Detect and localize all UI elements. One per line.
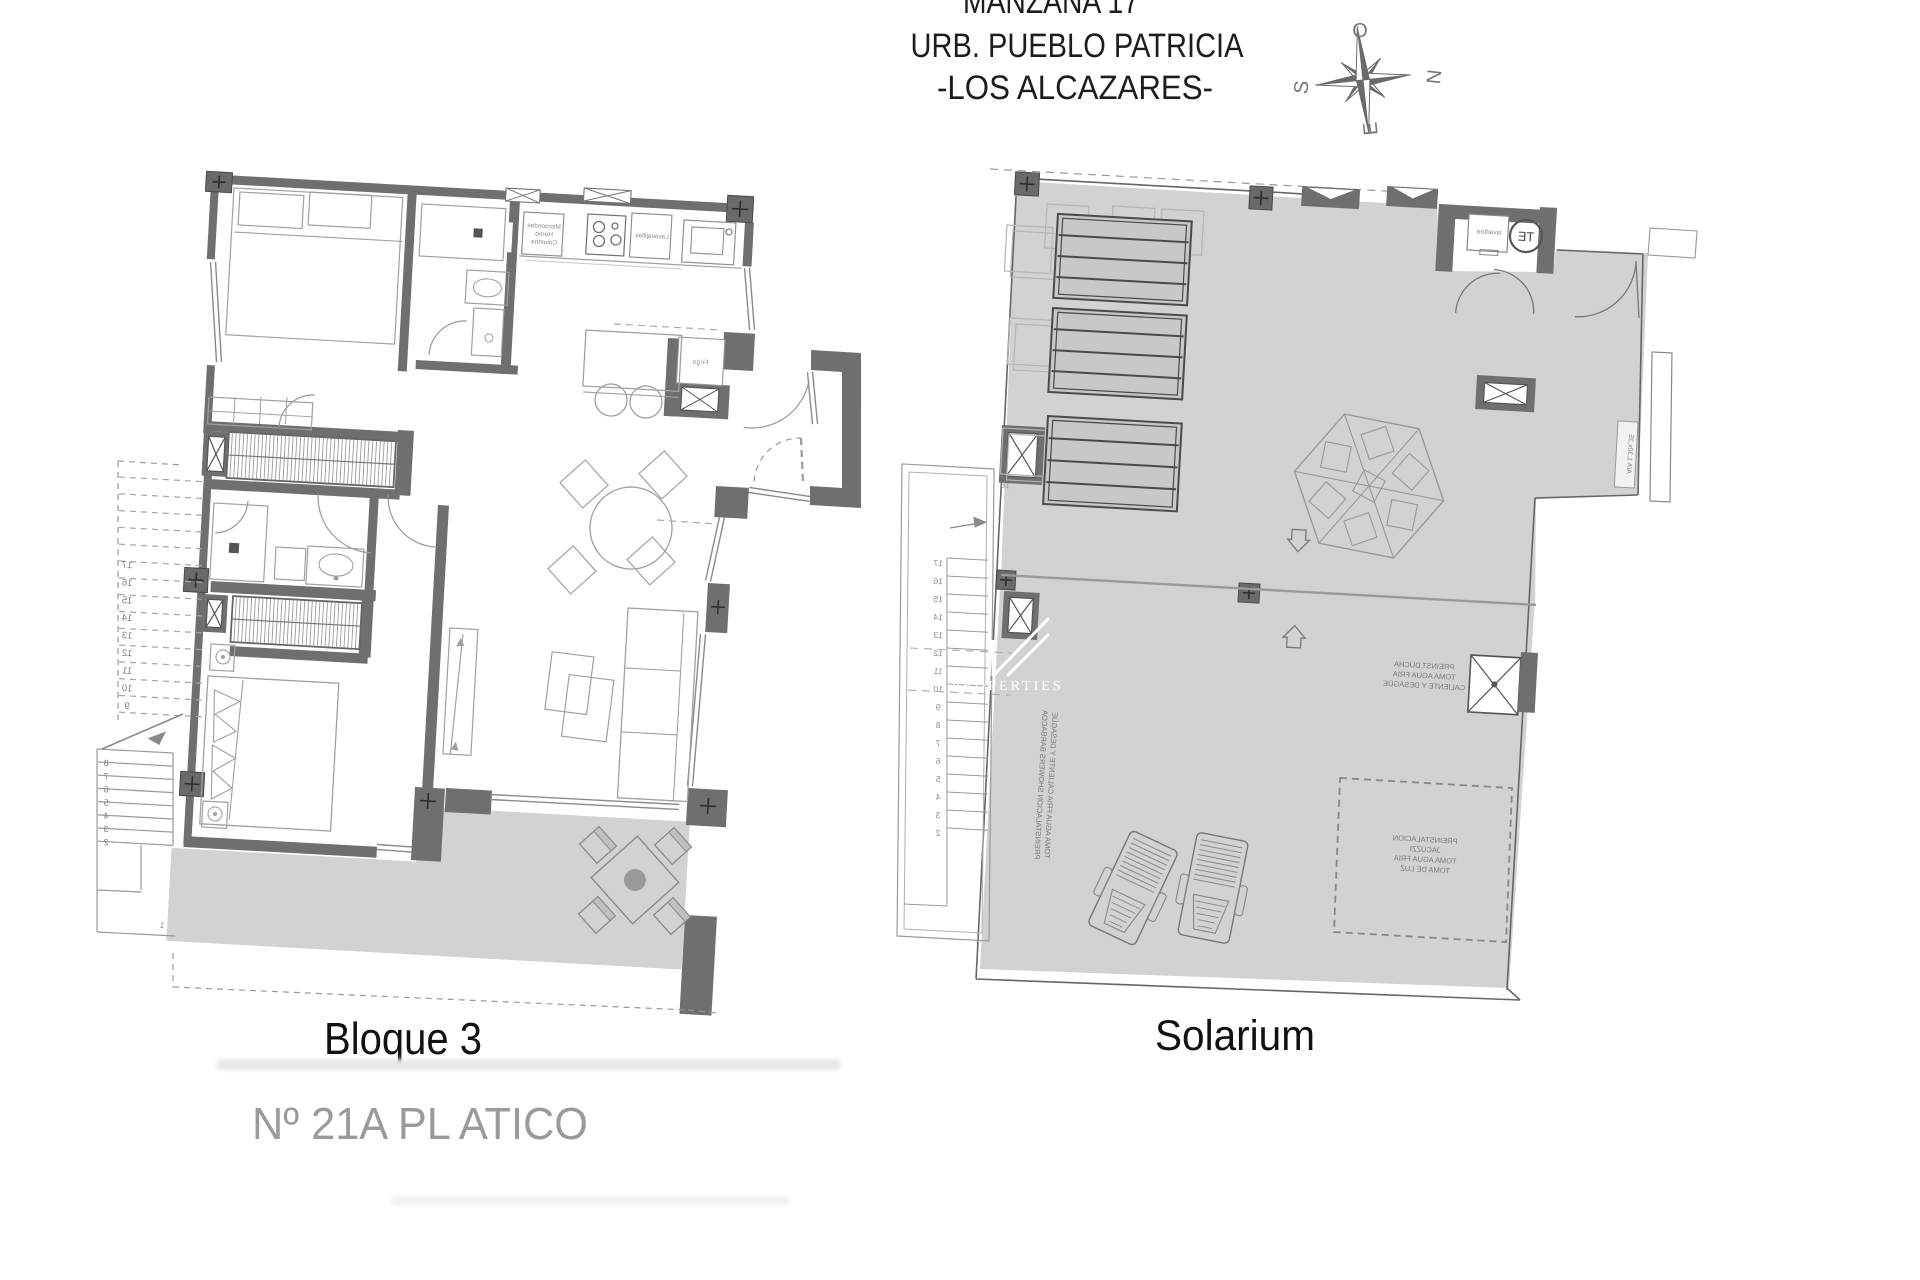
svg-text:Bloque 3: Bloque 3 — [324, 1013, 482, 1064]
svg-text:9: 9 — [124, 701, 130, 712]
svg-text:E: E — [1359, 121, 1382, 137]
svg-text:Frigo: Frigo — [692, 358, 708, 367]
svg-text:6: 6 — [103, 784, 109, 794]
svg-text:JACUZZI: JACUZZI — [1410, 844, 1441, 855]
svg-text:3: 3 — [935, 810, 941, 820]
svg-text:S: S — [1290, 80, 1313, 96]
svg-text:13: 13 — [122, 630, 133, 642]
svg-text:6: 6 — [935, 756, 941, 766]
svg-text:4: 4 — [935, 792, 941, 802]
svg-text:2: 2 — [103, 837, 109, 847]
svg-text:1: 1 — [159, 920, 165, 930]
svg-text:7: 7 — [935, 738, 941, 748]
svg-text:17: 17 — [122, 560, 133, 572]
svg-text:-LOS ALCAZARES-: -LOS ALCAZARES- — [937, 69, 1213, 107]
svg-text:13: 13 — [933, 630, 943, 641]
svg-text:N: N — [1421, 68, 1444, 85]
svg-text:14: 14 — [122, 612, 133, 624]
svg-text:11: 11 — [122, 665, 132, 677]
svg-text:7: 7 — [103, 771, 109, 781]
svg-text:3: 3 — [103, 824, 109, 834]
svg-text:URB. PUEBLO PATRICIA: URB. PUEBLO PATRICIA — [911, 27, 1244, 65]
svg-text:8: 8 — [103, 758, 109, 768]
svg-text:15: 15 — [933, 594, 943, 605]
svg-text:Solarium: Solarium — [1155, 1012, 1315, 1060]
svg-text:lavadora: lavadora — [1476, 228, 1502, 236]
svg-text:Horno: Horno — [535, 231, 553, 239]
svg-text:10: 10 — [933, 684, 943, 695]
svg-text:5: 5 — [935, 774, 941, 784]
svg-text:PROPERTIES: PROPERTIES — [952, 679, 1064, 694]
svg-text:15: 15 — [122, 595, 133, 607]
svg-text:17: 17 — [933, 558, 943, 569]
svg-text:5: 5 — [103, 797, 109, 807]
svg-text:14: 14 — [933, 612, 943, 623]
svg-text:16: 16 — [1000, 481, 1010, 491]
svg-text:4: 4 — [103, 811, 109, 821]
svg-text:11: 11 — [933, 666, 943, 676]
svg-text:O: O — [1352, 20, 1368, 42]
svg-text:12: 12 — [122, 648, 133, 660]
svg-text:8: 8 — [935, 720, 941, 730]
svg-text:Columna: Columna — [531, 238, 558, 246]
svg-text:Nº 21A PL ATICO: Nº 21A PL ATICO — [252, 1098, 588, 1149]
svg-text:TE: TE — [1517, 229, 1535, 245]
svg-text:10: 10 — [122, 683, 133, 695]
svg-text:16: 16 — [122, 577, 133, 589]
svg-text:16: 16 — [933, 576, 943, 587]
svg-text:MANZANA 17: MANZANA 17 — [963, 0, 1139, 21]
svg-text:9: 9 — [935, 702, 941, 712]
svg-text:2: 2 — [935, 828, 941, 838]
